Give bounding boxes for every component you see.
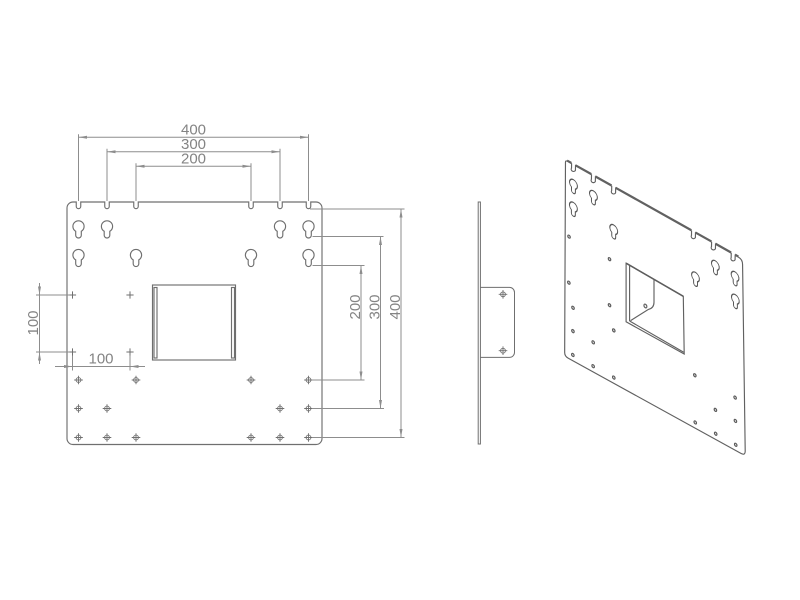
svg-text:100: 100 [88,351,113,368]
svg-text:300: 300 [367,294,384,319]
svg-text:200: 200 [347,294,364,319]
svg-text:100: 100 [25,310,42,335]
svg-text:400: 400 [387,294,404,319]
svg-text:200: 200 [181,151,206,168]
